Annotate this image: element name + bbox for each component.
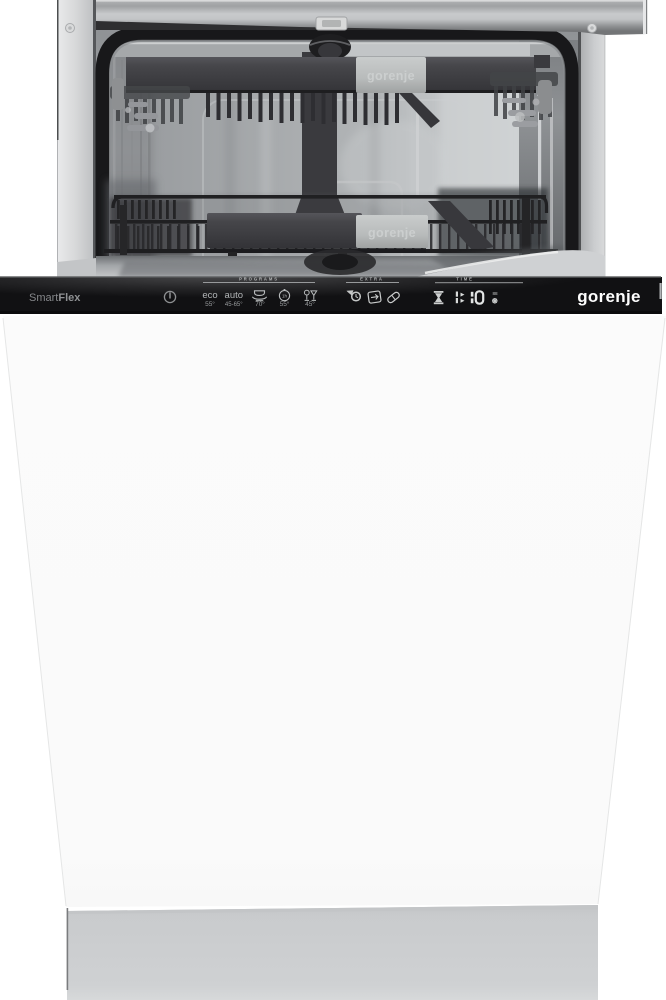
svg-text:55°: 55° bbox=[280, 300, 290, 308]
svg-text:EXTRA: EXTRA bbox=[360, 277, 384, 282]
svg-text:auto: auto bbox=[225, 290, 244, 301]
svg-text:45°: 45° bbox=[305, 300, 315, 308]
svg-text:SmartFlex: SmartFlex bbox=[29, 292, 81, 304]
svg-text:eco: eco bbox=[202, 290, 217, 301]
svg-text:PROGRAMS: PROGRAMS bbox=[239, 277, 279, 282]
svg-text:gorenje: gorenje bbox=[368, 226, 416, 240]
svg-text:70°: 70° bbox=[255, 300, 265, 308]
svg-text:1h: 1h bbox=[282, 294, 288, 299]
svg-text:gorenje: gorenje bbox=[577, 287, 641, 306]
svg-text:TIME: TIME bbox=[456, 277, 474, 282]
svg-text:88: 88 bbox=[492, 291, 498, 296]
svg-text:55°: 55° bbox=[205, 300, 215, 308]
svg-text:45-65°: 45-65° bbox=[225, 302, 243, 308]
svg-text:gorenje: gorenje bbox=[367, 69, 415, 83]
